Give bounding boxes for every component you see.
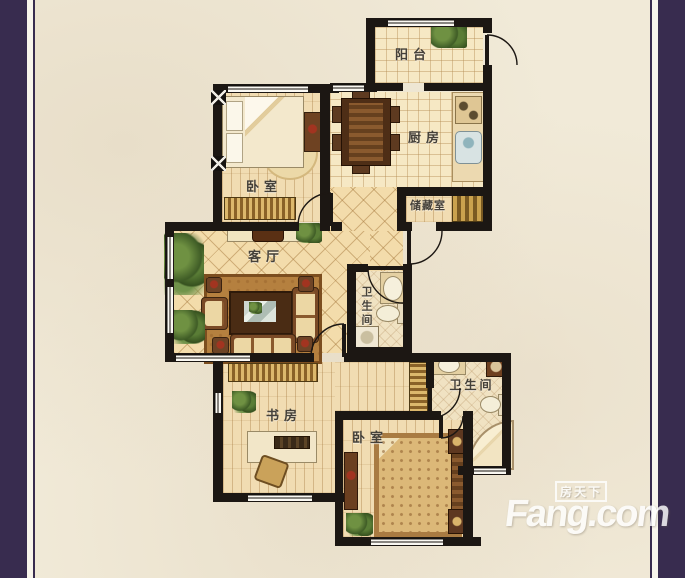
floorplan-page: { "colors": { "purple": "#382c4f", "crea…	[0, 0, 685, 578]
left-border-band	[0, 0, 27, 578]
fang-watermark: 房天下 Fang.com	[503, 481, 685, 541]
door-leaf-lines	[331, 35, 487, 438]
fang-logo: Fang.com	[502, 493, 671, 536]
left-border-hairline	[33, 0, 35, 578]
